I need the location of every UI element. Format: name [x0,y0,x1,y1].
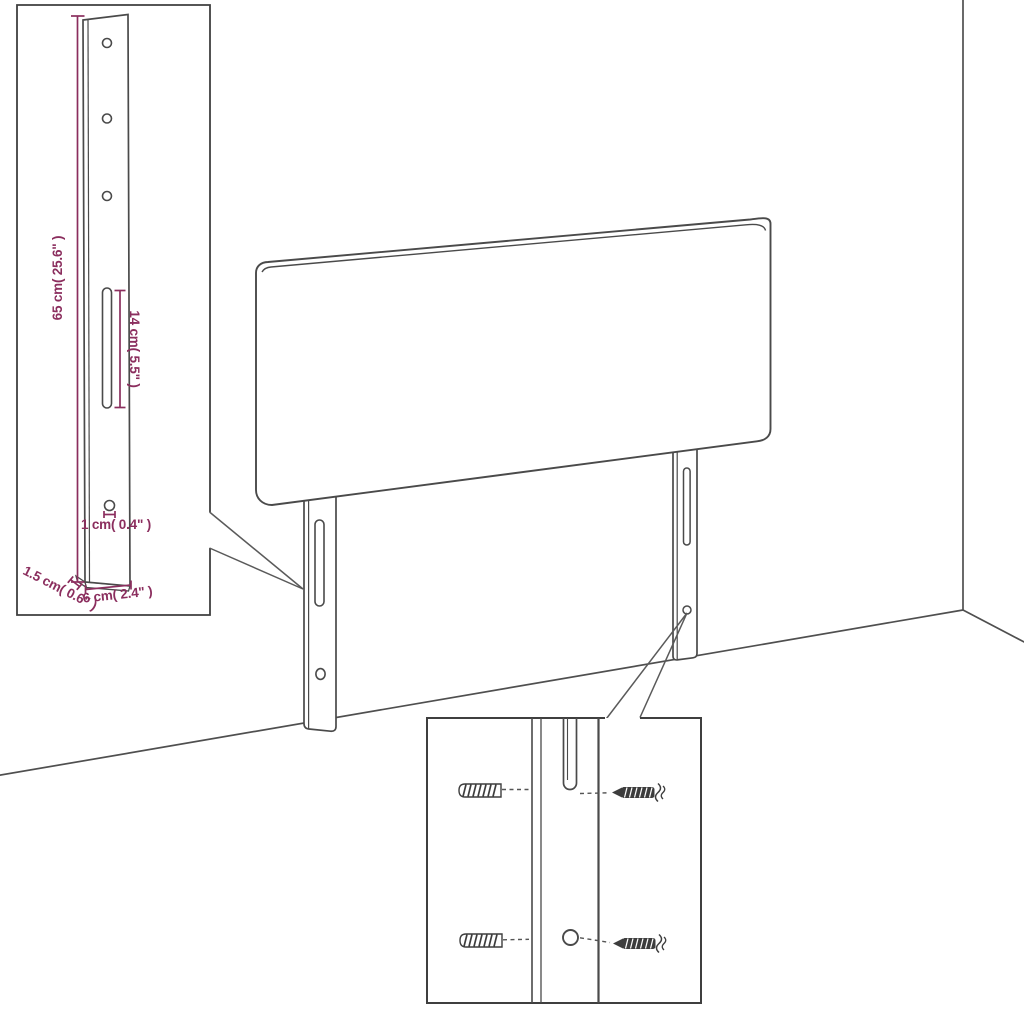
headboard-diagram: 65 cm( 25.6" ) 14 cm( 5.5" ) 1 cm( 0.4" … [0,0,1024,1024]
diagram-canvas: 65 cm( 25.6" ) 14 cm( 5.5" ) 1 cm( 0.4" … [0,0,1024,1024]
left-leg-hole [316,669,325,680]
left-mounting-leg [304,494,336,731]
right-leg-slot [684,468,691,545]
hardware-detail-inset [427,718,701,1003]
wall-plug-bottom [460,934,502,947]
dimension-label-slot-length: 14 cm( 5.5" ) [127,310,142,387]
leg-front-face [83,15,130,587]
wall-plug-top [459,784,501,797]
dimension-label-hole-diameter: 1 cm( 0.4" ) [81,517,151,532]
right-leg-hole [683,606,691,614]
dimension-label-leg-height: 65 cm( 25.6" ) [50,236,65,321]
left-leg-slot [315,520,324,606]
leg-front-view [76,15,130,592]
leg-detail-inset: 65 cm( 25.6" ) 14 cm( 5.5" ) 1 cm( 0.4" … [17,5,210,615]
